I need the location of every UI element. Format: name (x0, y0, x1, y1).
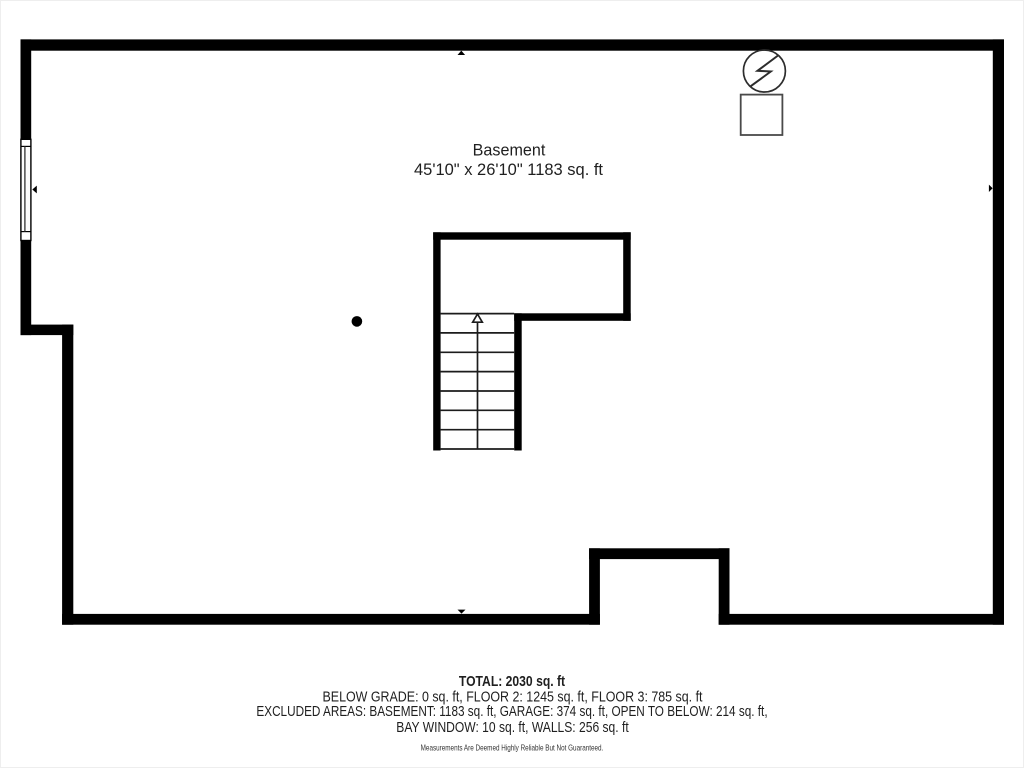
svg-text:Basement: Basement (473, 140, 546, 159)
svg-text:Measurements Are Deemed Highly: Measurements Are Deemed Highly Reliable … (421, 742, 604, 752)
svg-text:TOTAL: 2030 sq. ft: TOTAL: 2030 sq. ft (459, 674, 565, 690)
svg-text:EXCLUDED AREAS: BASEMENT: 1183: EXCLUDED AREAS: BASEMENT: 1183 sq. ft, G… (256, 704, 767, 720)
svg-text:BELOW GRADE: 0 sq. ft, FLOOR 2: BELOW GRADE: 0 sq. ft, FLOOR 2: 1245 sq.… (323, 690, 703, 706)
svg-text:BAY WINDOW: 10 sq. ft, WALLS:: BAY WINDOW: 10 sq. ft, WALLS: 256 sq. ft (396, 720, 628, 736)
svg-text:45'10" x 26'10" 1183 sq. ft: 45'10" x 26'10" 1183 sq. ft (414, 160, 603, 179)
